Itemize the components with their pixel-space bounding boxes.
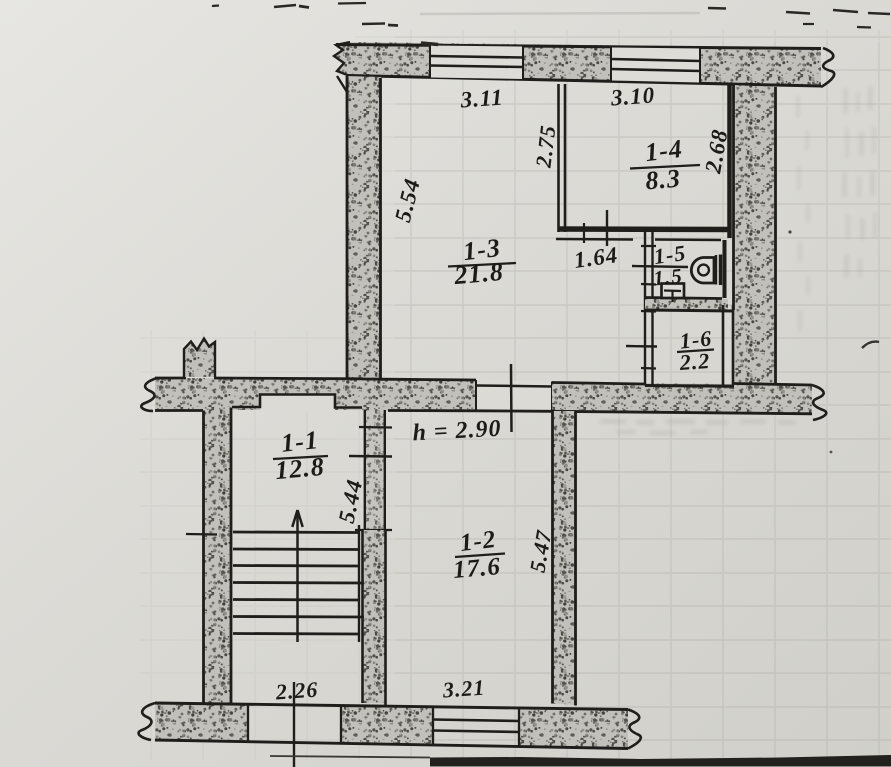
svg-text:12.8: 12.8 [274, 452, 326, 485]
svg-text:3.11: 3.11 [459, 85, 505, 113]
svg-text:1-2: 1-2 [458, 526, 497, 557]
svg-text:21.8: 21.8 [452, 257, 505, 290]
svg-text:1-4: 1-4 [643, 134, 684, 167]
svg-text:h = 2.90: h = 2.90 [412, 416, 502, 447]
svg-text:2.75: 2.75 [530, 123, 560, 169]
svg-text:2.2: 2.2 [678, 348, 711, 375]
svg-text:3.10: 3.10 [609, 82, 656, 110]
svg-text:3.21: 3.21 [441, 675, 486, 703]
svg-text:17.6: 17.6 [452, 553, 502, 584]
svg-text:8.3: 8.3 [644, 164, 682, 196]
svg-text:1.5: 1.5 [652, 264, 684, 291]
svg-text:2.26: 2.26 [274, 677, 319, 705]
